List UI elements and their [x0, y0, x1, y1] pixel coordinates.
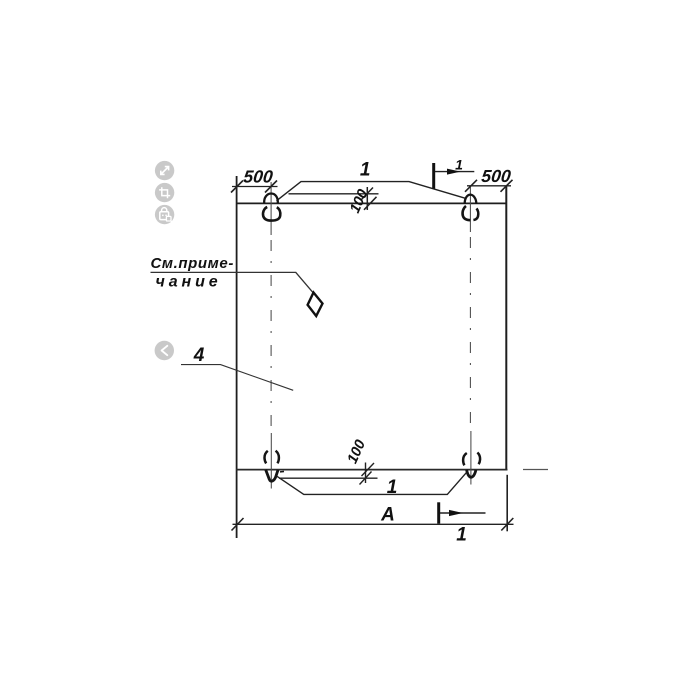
svg-text:500: 500 [480, 166, 512, 186]
svg-text:1: 1 [360, 160, 371, 181]
svg-text:500: 500 [242, 167, 274, 187]
svg-text:А: А [380, 505, 395, 526]
svg-text:1: 1 [387, 477, 398, 498]
svg-text:чание: чание [156, 273, 222, 290]
svg-text:1: 1 [456, 525, 467, 546]
svg-text:1: 1 [455, 156, 463, 172]
svg-text:См.приме-: См.приме- [151, 255, 234, 272]
svg-text:4: 4 [193, 345, 205, 366]
